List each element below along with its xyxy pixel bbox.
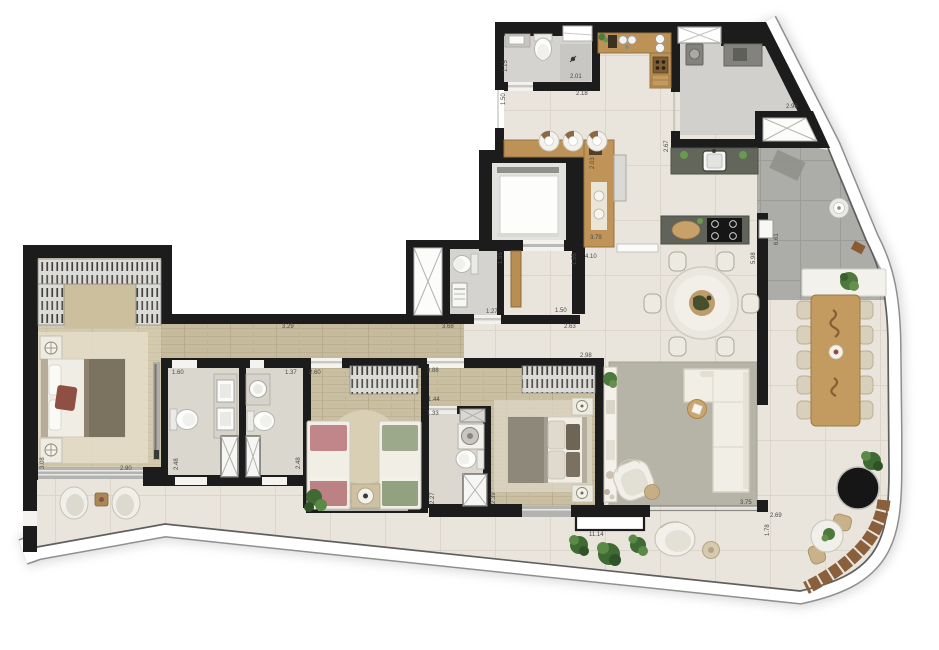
svg-text:2.48: 2.48 <box>296 457 302 469</box>
svg-text:2.96: 2.96 <box>786 104 798 110</box>
svg-text:6.61: 6.61 <box>774 233 780 245</box>
svg-text:1.60: 1.60 <box>172 370 184 376</box>
svg-text:2.90: 2.90 <box>120 466 132 472</box>
svg-text:2.67: 2.67 <box>664 140 670 152</box>
svg-text:1.44: 1.44 <box>428 397 440 403</box>
svg-text:1.50: 1.50 <box>555 308 567 314</box>
svg-text:1.55: 1.55 <box>572 253 578 265</box>
svg-text:3.75: 3.75 <box>740 500 752 506</box>
svg-text:11.14: 11.14 <box>589 532 604 538</box>
svg-text:1.55: 1.55 <box>498 252 504 264</box>
svg-text:1.50: 1.50 <box>501 93 507 105</box>
svg-text:2.63: 2.63 <box>564 324 576 330</box>
svg-text:2.01: 2.01 <box>570 74 582 80</box>
svg-text:3.79: 3.79 <box>590 235 602 241</box>
svg-text:2.27: 2.27 <box>430 492 436 504</box>
svg-text:3.29: 3.29 <box>282 324 294 330</box>
svg-text:2.39: 2.39 <box>491 492 497 504</box>
svg-text:3.08: 3.08 <box>40 457 46 469</box>
svg-text:1.33: 1.33 <box>427 411 439 417</box>
svg-text:2.18: 2.18 <box>576 91 588 97</box>
svg-text:4.10: 4.10 <box>585 254 597 260</box>
svg-text:1.15: 1.15 <box>503 60 509 72</box>
svg-text:5.98: 5.98 <box>751 252 757 264</box>
svg-text:1.37: 1.37 <box>285 370 297 376</box>
svg-text:3.68: 3.68 <box>442 324 454 330</box>
svg-text:2.98: 2.98 <box>580 353 592 359</box>
svg-text:2.48: 2.48 <box>174 458 180 470</box>
svg-text:2.69: 2.69 <box>770 513 782 519</box>
svg-text:2.03: 2.03 <box>590 157 596 169</box>
svg-text:1.78: 1.78 <box>765 524 771 536</box>
svg-text:3.88: 3.88 <box>427 368 439 374</box>
svg-text:2.60: 2.60 <box>309 370 321 376</box>
svg-text:1.27: 1.27 <box>486 309 498 315</box>
